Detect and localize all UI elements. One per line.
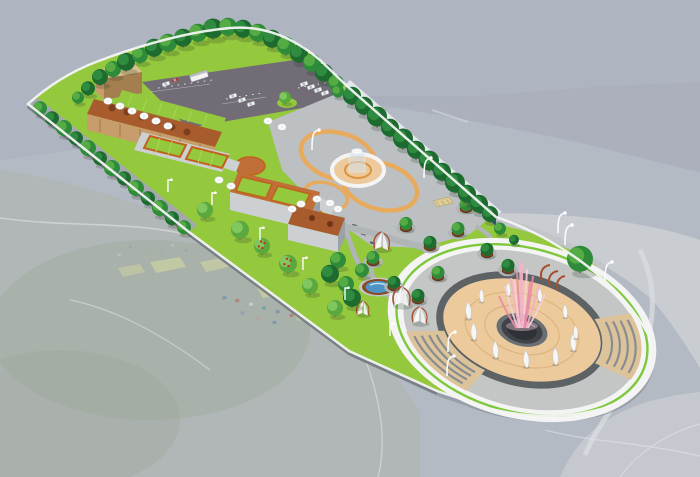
parasol — [297, 201, 306, 208]
parasol — [288, 206, 297, 213]
parasol — [278, 124, 287, 131]
parasol — [128, 108, 137, 115]
parasol — [313, 196, 322, 203]
parasol — [264, 118, 273, 125]
parasol — [164, 123, 173, 130]
parasol — [215, 177, 224, 184]
parasol — [227, 183, 236, 190]
round-terrace — [235, 157, 265, 175]
parasol — [152, 118, 161, 125]
parasol — [116, 103, 125, 110]
site-rendering-canvas — [0, 0, 700, 477]
architectural-rendering — [0, 0, 700, 477]
glass-fountain — [349, 153, 365, 172]
fountain-spray — [352, 149, 363, 154]
parasol — [104, 98, 113, 105]
parasol — [334, 206, 343, 213]
parasol — [326, 200, 335, 207]
parasol — [140, 113, 149, 120]
